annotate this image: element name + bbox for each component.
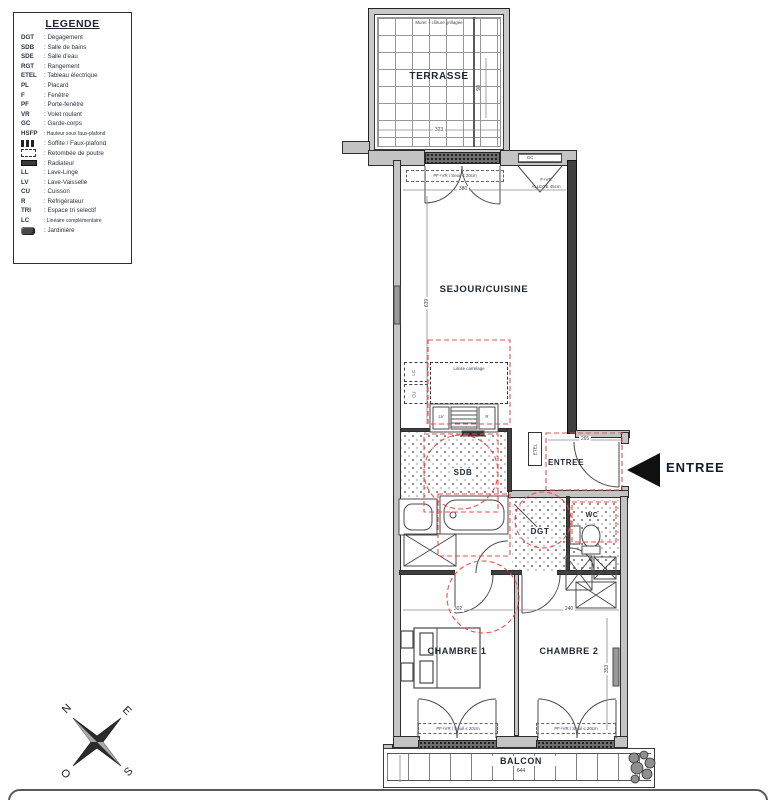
- legend-abbr: LV: [21, 179, 44, 187]
- legend-abbr: SDB: [21, 44, 44, 52]
- legend-abbr: LL: [21, 169, 44, 177]
- legend-label: Fenêtre: [44, 92, 69, 100]
- legend-item: VRVolet roulant: [21, 111, 131, 119]
- bed-bedroom1: [401, 628, 480, 688]
- beam-icon: [21, 149, 36, 157]
- soffite-bathroom: [401, 432, 507, 528]
- tile-limit-label: Limite carrelage: [432, 366, 506, 372]
- legend-item: SDESalle d'eau: [21, 53, 131, 61]
- terrace-side-dim: 90: [476, 82, 482, 94]
- legend-label: Radiateur: [44, 160, 74, 168]
- bedroom1-label: CHAMBRE 1: [407, 646, 507, 656]
- legend-item: PLPlacard: [21, 82, 131, 90]
- legend-item: SDBSalle de bains: [21, 44, 131, 52]
- legend-item: Radiateur: [21, 160, 131, 168]
- legend-item: RRéfrigérateur: [21, 198, 131, 206]
- compass: N E S O: [55, 700, 145, 790]
- legend-item: DGTDégagement: [21, 34, 131, 42]
- bathroom-label: SDB: [446, 468, 480, 477]
- legend-abbr: LC: [21, 217, 44, 225]
- legend-label: Cuisson: [44, 188, 70, 196]
- legend-abbr: CU: [21, 188, 44, 196]
- legend-abbr: VR: [21, 111, 44, 119]
- legend-label: Réfrigérateur: [44, 198, 84, 206]
- wall-entry-jamb-top: [621, 432, 629, 444]
- legend-abbr: PF: [21, 101, 44, 109]
- legend-abbr: PL: [21, 82, 44, 90]
- legend-label: Porte-fenêtre: [44, 101, 84, 109]
- soffite-icon: [21, 140, 35, 147]
- legend-item: HSFPHauteur sous faux-plafond: [21, 130, 131, 138]
- wall-bottom-c: [614, 736, 628, 748]
- balcony-label: BALCON: [478, 756, 564, 766]
- legend-title: LEGENDE: [14, 18, 131, 30]
- kitchen-cu-label: CU: [411, 392, 417, 398]
- legend-item: Retombée de poutre: [21, 149, 131, 158]
- legend-label: Hauteur sous faux-plafond: [44, 130, 105, 138]
- compass-east: E: [120, 704, 134, 718]
- legend-item: Soffite / Faux-plafond: [21, 140, 131, 148]
- living-label: SEJOUR/CUISINE: [401, 284, 567, 295]
- radiator-icon: [21, 160, 37, 166]
- legend-label: Lave-Vaisselle: [44, 179, 87, 187]
- compass-north: N: [60, 702, 74, 716]
- compass-south: S: [122, 765, 136, 779]
- bedroom1-width-dim: 302: [435, 606, 481, 612]
- compass-west: O: [58, 767, 73, 782]
- legend-label: Volet roulant: [44, 111, 82, 119]
- top-door-note: PF+VR / Seuil ≤ 20cm: [407, 173, 503, 179]
- balcony-door-note-box-2: PF+VR / Seuil ≤ 20cm: [536, 723, 616, 734]
- wc-label: WC: [578, 512, 606, 519]
- guard-label: GC: [520, 155, 540, 161]
- legend-label: Placard: [44, 82, 68, 90]
- kitchen-lc-label: LC: [411, 370, 417, 376]
- living-width-dim: 380: [440, 186, 486, 192]
- legend-label: Garde-corps: [44, 120, 82, 128]
- legend-item: Jardinière: [21, 227, 131, 236]
- legend-label: Salle de bains: [44, 44, 86, 52]
- window-sill-note: ALLEGE 45cm: [516, 184, 576, 190]
- legend-abbr: RGT: [21, 63, 44, 71]
- entry-arrow-label: ENTREE: [666, 460, 725, 475]
- legend-label: Lave-Linge: [44, 169, 78, 177]
- electrical-box: ETEL: [528, 432, 542, 466]
- legend-label: Tableau électrique: [44, 72, 98, 80]
- legend-abbr: ETEL: [21, 72, 44, 80]
- legend-label: Soffite / Faux-plafond: [44, 140, 106, 148]
- entry-arrow-icon: [627, 453, 660, 487]
- legend-item: ETELTableau électrique: [21, 72, 131, 80]
- legend-item: CUCuisson: [21, 188, 131, 196]
- kitchen-lv-label: LV: [433, 414, 449, 420]
- legend-item: RGTRangement: [21, 63, 131, 71]
- dimension-lines: [378, 58, 621, 782]
- wall-step-left: [342, 141, 370, 154]
- footer-frame: [8, 789, 768, 800]
- wall-bath-hall-divider: [507, 428, 512, 492]
- wall-exterior-right-upper: [567, 160, 577, 434]
- kitchen-fridge-label: R: [479, 414, 495, 420]
- legend-item: LCLinéaire complémentaire: [21, 217, 131, 225]
- wall-exterior-left: [393, 160, 401, 744]
- hall-width-dim: 265: [562, 436, 608, 442]
- floor-plan-page: LEGENDE DGTDégagement SDBSalle de bains …: [0, 0, 778, 800]
- kitchen-cu-box: CU: [404, 384, 428, 404]
- legend-item: TRIEspace tri selectif: [21, 207, 131, 215]
- legend-label: Rangement: [44, 63, 79, 71]
- bedroom2-height-dim: 353: [604, 661, 610, 677]
- terrace-label: TERRASSE: [369, 71, 509, 82]
- legend-item: LVLave-Vaisselle: [21, 179, 131, 187]
- wall-bedrooms-divider: [514, 574, 519, 736]
- legend-label: Salle d'eau: [44, 53, 78, 61]
- legend-label: Espace tri selectif: [44, 207, 96, 215]
- electrical-label: ETEL: [533, 443, 538, 455]
- hall-label: ENTREE: [542, 458, 590, 467]
- legend-item: PFPorte-fenêtre: [21, 101, 131, 109]
- wall-bedroom1-top-a: [399, 570, 455, 575]
- balcony-door-note-2: PF+VR / Seuil ≤ 20cm: [537, 726, 615, 732]
- legend-abbr: F: [21, 92, 44, 100]
- legend-abbr: SDE: [21, 53, 44, 61]
- legend-label: Linéaire complémentaire: [44, 217, 102, 225]
- terrace-door-sill: [425, 152, 500, 164]
- legend-item: LLLave-Linge: [21, 169, 131, 177]
- soffite-wc: [570, 500, 620, 570]
- legend-abbr: DGT: [21, 34, 44, 42]
- corridor-label: DGT: [522, 527, 558, 536]
- legend-item: FFenêtre: [21, 92, 131, 100]
- legend-panel: LEGENDE DGTDégagement SDBSalle de bains …: [13, 12, 132, 264]
- terrace-width-dim: 323: [369, 127, 509, 133]
- balcony-door-note-box-1: PF+VR / Seuil ≤ 20cm: [418, 723, 498, 734]
- living-height-dim: 639: [424, 295, 430, 311]
- bedroom2-width-dim: 240: [546, 606, 592, 612]
- legend-label: Dégagement: [44, 34, 83, 42]
- kitchen-lc-box: LC: [404, 362, 428, 382]
- terrace-room: Muret + clôture grillagée TERRASSE 323 9…: [368, 8, 510, 156]
- legend-abbr: GC: [21, 120, 44, 128]
- wall-bedroom2-top: [557, 570, 620, 575]
- legend-abbr: HSFP: [21, 130, 44, 138]
- top-door-note-box: PF+VR / Seuil ≤ 20cm: [406, 170, 504, 182]
- legend-item: GCGarde-corps: [21, 120, 131, 128]
- wall-bottom-a: [393, 736, 420, 748]
- bedroom2-label: CHAMBRE 2: [521, 646, 617, 656]
- legend-abbr: TRI: [21, 207, 44, 215]
- balcony-width-dim: 644: [498, 768, 544, 774]
- balcony-door-note-1: PF+VR / Seuil ≤ 20cm: [419, 726, 497, 732]
- planter-icon: [21, 227, 35, 235]
- legend-label: Retombée de poutre: [44, 150, 104, 158]
- wall-exterior-right-lower: [620, 496, 628, 744]
- legend-label: Jardinière: [44, 227, 75, 235]
- window-label: F+VR: [524, 177, 568, 183]
- wall-bottom-b: [496, 736, 538, 748]
- legend-abbr: R: [21, 198, 44, 206]
- terrace-note: Muret + clôture grillagée: [369, 20, 509, 26]
